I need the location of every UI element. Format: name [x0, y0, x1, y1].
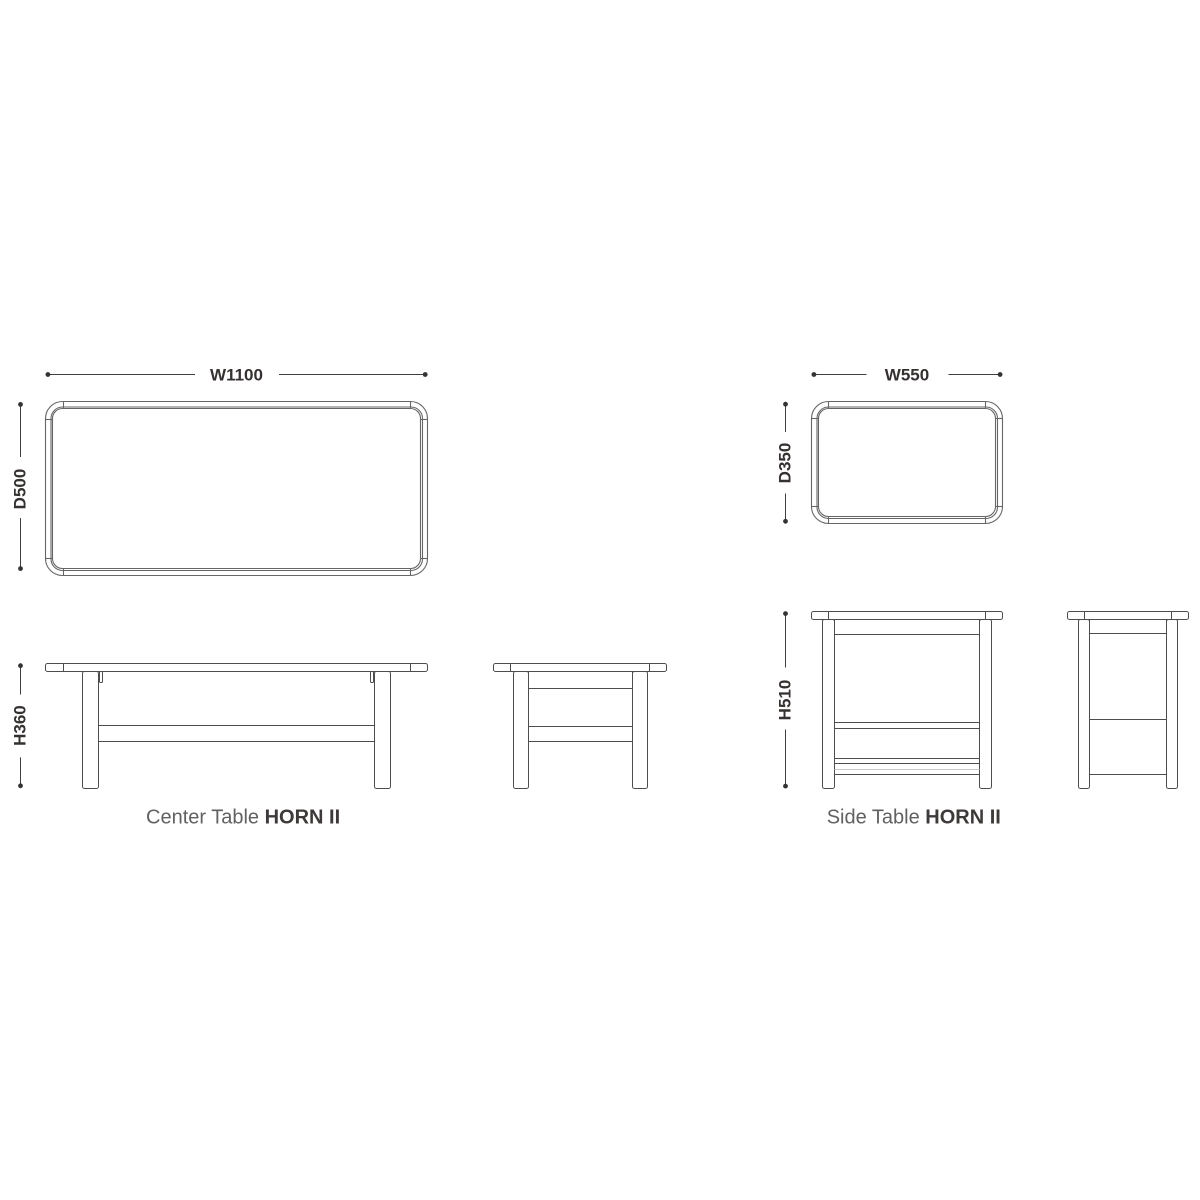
svg-text:Side Table HORN II: Side Table HORN II: [827, 807, 1001, 829]
svg-text:W1100: W1100: [210, 366, 263, 385]
svg-text:H510: H510: [776, 680, 795, 721]
svg-text:W550: W550: [885, 366, 929, 385]
svg-text:D500: D500: [11, 469, 30, 510]
svg-text:D350: D350: [776, 443, 795, 484]
svg-text:H360: H360: [11, 705, 30, 746]
svg-text:Center Table HORN II: Center Table HORN II: [146, 807, 340, 829]
